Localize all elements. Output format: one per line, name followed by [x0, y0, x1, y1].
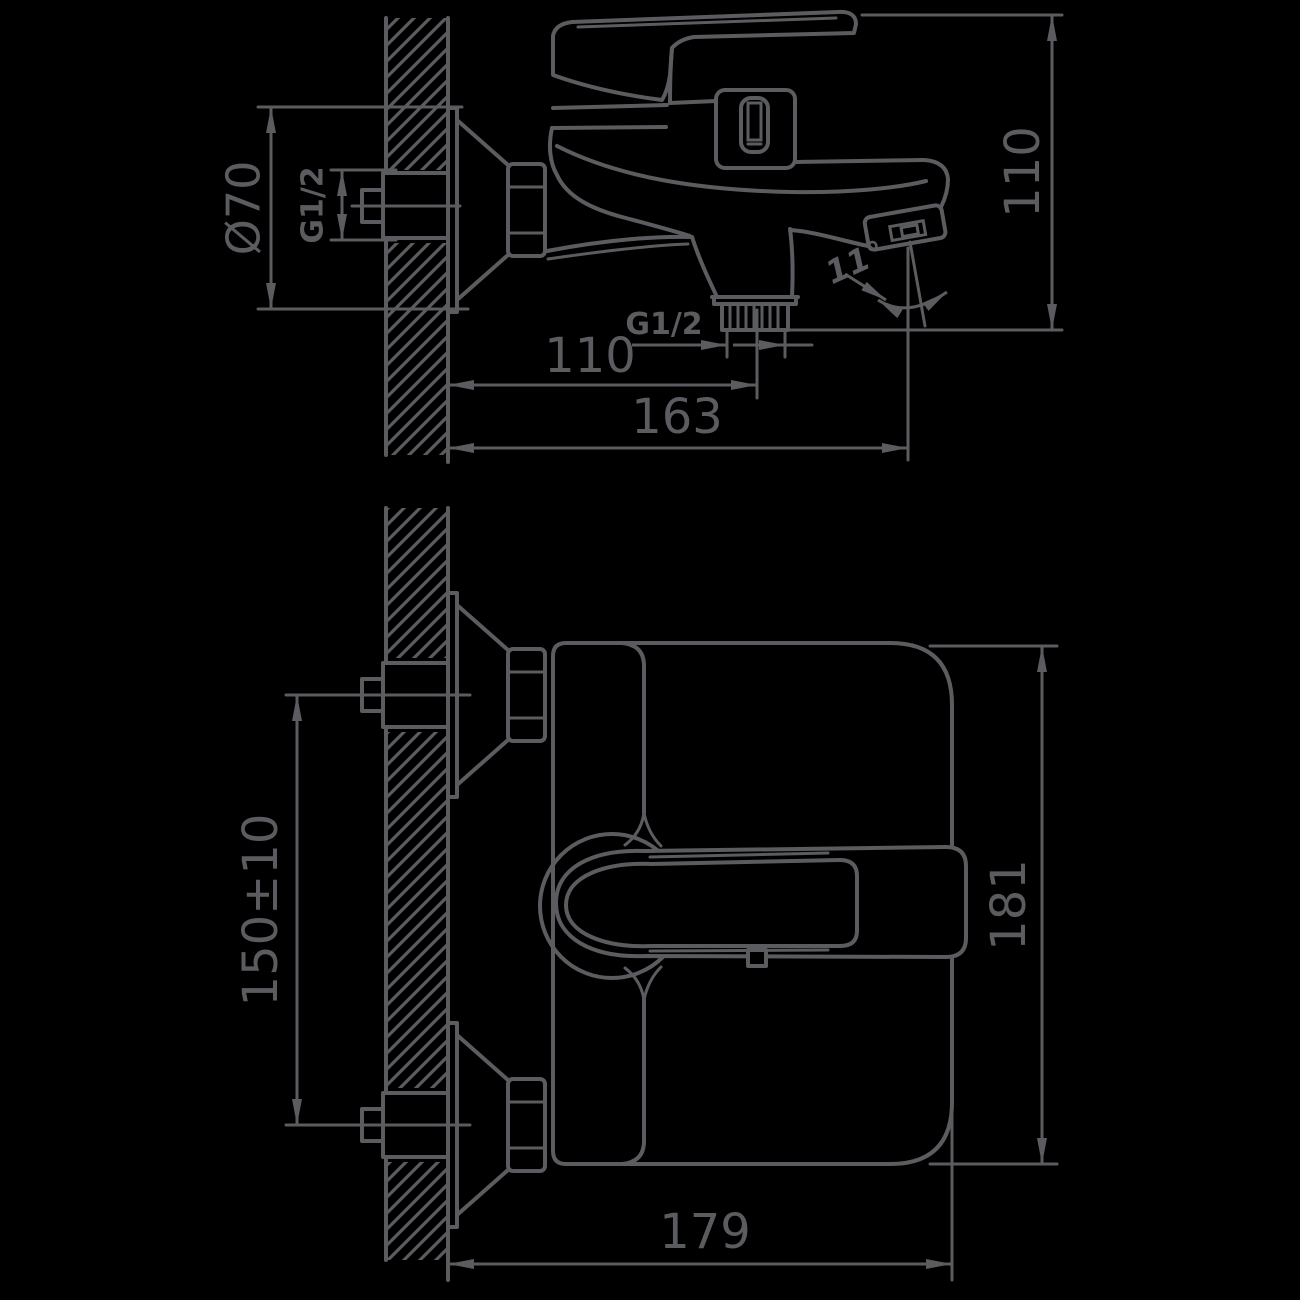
- dim-spout-reach: 163: [448, 389, 908, 448]
- barrel-top-edge: [795, 160, 924, 162]
- shower-outlet: [692, 229, 798, 330]
- dim-label-inlet-spacing: 150±10: [233, 814, 289, 1007]
- cartridge-collar: [552, 105, 667, 128]
- dim-label-body-depth: 179: [659, 1204, 751, 1260]
- wall-pipe-fitting-side: [352, 173, 460, 238]
- faucet-body-front: [540, 643, 966, 1164]
- hex-nut-front-top: [508, 649, 545, 741]
- lever-knuckle: [670, 48, 716, 103]
- dim-label-wall-thread: G1/2: [296, 166, 331, 243]
- dim-spout-angle: 11°: [820, 233, 947, 460]
- hex-nut-side: [508, 164, 545, 256]
- dim-label-escutcheon-diameter: Ø70: [217, 161, 271, 256]
- dim-label-outlet-offset: 110: [544, 328, 636, 384]
- dim-label-overall-height: 110: [995, 126, 1051, 218]
- dim-label-spout-reach: 163: [631, 389, 723, 445]
- faucet-dimension-drawing: Ø70 G1/2 110 G1/2 110 163: [0, 0, 1300, 1300]
- dim-overall-height: 110: [788, 15, 1062, 330]
- spout-right-edge: [924, 160, 948, 207]
- dim-outlet-offset: 110: [448, 328, 757, 385]
- side-view: Ø70 G1/2 110 G1/2 110 163: [217, 12, 1063, 462]
- technical-drawing-page: Ø70 G1/2 110 G1/2 110 163: [0, 0, 1300, 1300]
- lever-indicator-notch: [748, 950, 766, 966]
- hex-nut-front-bottom: [508, 1079, 545, 1171]
- diverter-knob: [716, 90, 795, 168]
- dim-label-outlet-thread: G1/2: [625, 307, 702, 342]
- dim-label-body-height: 181: [981, 859, 1037, 951]
- escutcheon-side: [448, 108, 545, 312]
- front-view: 150±10 181 179: [233, 508, 1057, 1280]
- wall-section-front: [386, 508, 448, 1280]
